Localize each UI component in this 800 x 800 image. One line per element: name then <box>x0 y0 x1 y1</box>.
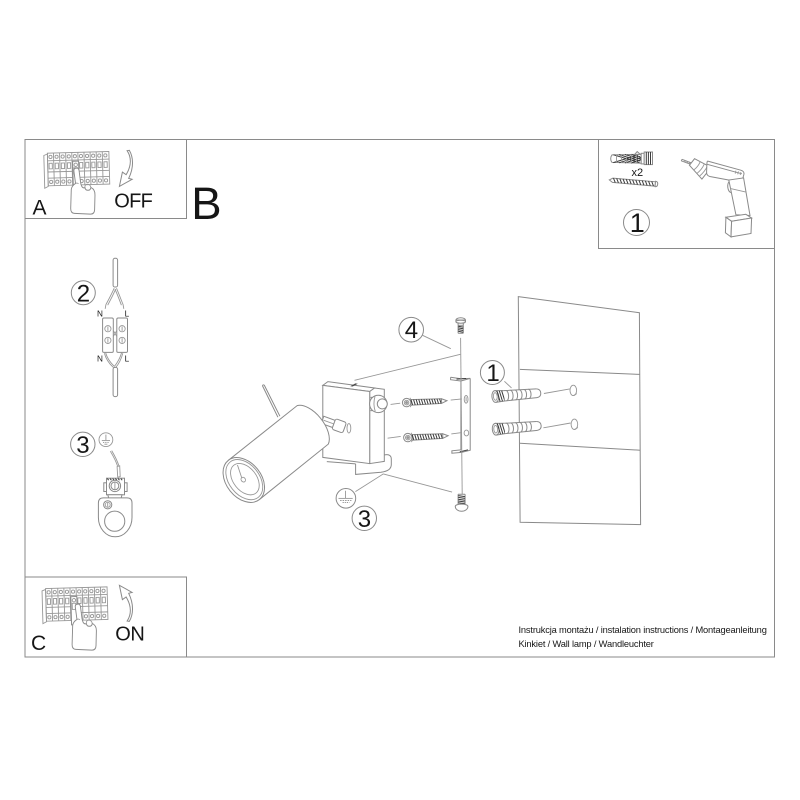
svg-text:x2: x2 <box>632 167 644 179</box>
svg-text:L: L <box>125 354 130 363</box>
svg-text:L: L <box>125 310 130 319</box>
svg-text:A: A <box>33 197 47 220</box>
svg-text:1: 1 <box>486 360 499 387</box>
svg-text:ON: ON <box>115 624 144 646</box>
svg-text:OFF: OFF <box>114 191 152 213</box>
svg-text:Instrukcja montażu / instalati: Instrukcja montażu / instalation instruc… <box>519 625 767 635</box>
svg-text:1: 1 <box>630 208 645 238</box>
svg-text:N: N <box>97 354 103 363</box>
svg-text:Kinkiet / Wall lamp / Wandleuc: Kinkiet / Wall lamp / Wandleuchter <box>519 639 654 649</box>
svg-text:N: N <box>97 310 103 319</box>
svg-text:4: 4 <box>405 317 418 344</box>
svg-text:3: 3 <box>358 506 371 533</box>
svg-text:3: 3 <box>76 432 89 459</box>
svg-text:2: 2 <box>77 280 90 307</box>
svg-text:B: B <box>191 178 221 229</box>
svg-text:C: C <box>31 632 46 655</box>
